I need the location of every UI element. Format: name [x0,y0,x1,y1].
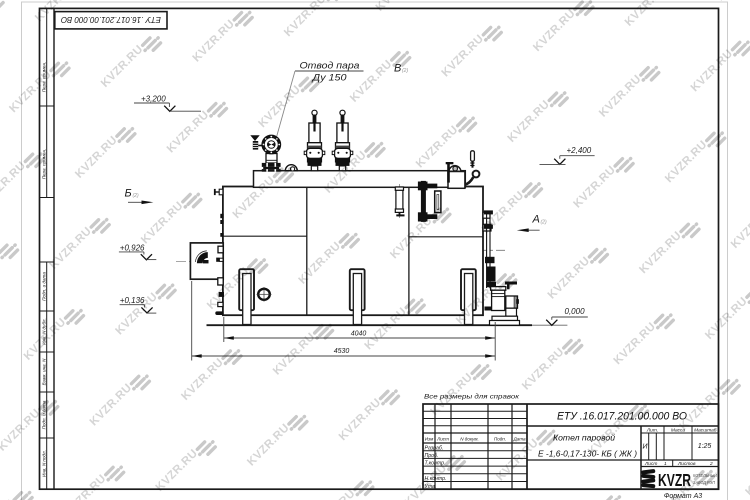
svg-text:Лист: Лист [436,437,449,442]
svg-text:1:25: 1:25 [698,443,712,450]
svg-text:(2): (2) [133,193,139,199]
svg-text:+2,400: +2,400 [567,146,592,155]
svg-text:Масштаб: Масштаб [694,427,717,433]
svg-text:А: А [532,214,540,226]
svg-text:Лит.: Лит. [646,427,658,433]
svg-text:Дата: Дата [512,437,526,442]
svg-text:Инв. N подл.: Инв. N подл. [42,450,47,477]
svg-text:(2): (2) [402,68,408,74]
svg-text:Подп. и дата: Подп. и дата [42,272,47,301]
svg-text:Разраб.: Разраб. [425,445,444,451]
svg-text:Взам. инв. N: Взам. инв. N [42,358,47,385]
svg-text:+3,200: +3,200 [141,95,166,104]
svg-text:Подп.: Подп. [494,437,506,442]
svg-text:Листов: Листов [677,461,696,467]
svg-text:0,000: 0,000 [565,307,586,316]
svg-text:2: 2 [709,461,713,467]
svg-text:+0,926: +0,926 [120,243,145,252]
svg-text:4040: 4040 [351,330,367,337]
svg-text:ЕТУ .16.017.201.00.000 ВО: ЕТУ .16.017.201.00.000 ВО [61,15,161,24]
svg-text:Изм: Изм [425,437,434,442]
svg-text:4530: 4530 [334,348,350,355]
svg-text:Проб.: Проб. [425,453,439,459]
svg-text:Лист: Лист [644,461,657,467]
svg-text:N докум.: N докум. [460,437,479,442]
svg-text:Б: Б [125,187,132,199]
svg-text:(2): (2) [541,220,547,226]
svg-text:1: 1 [664,461,667,467]
svg-text:Отвод пара: Отвод пара [300,61,360,72]
